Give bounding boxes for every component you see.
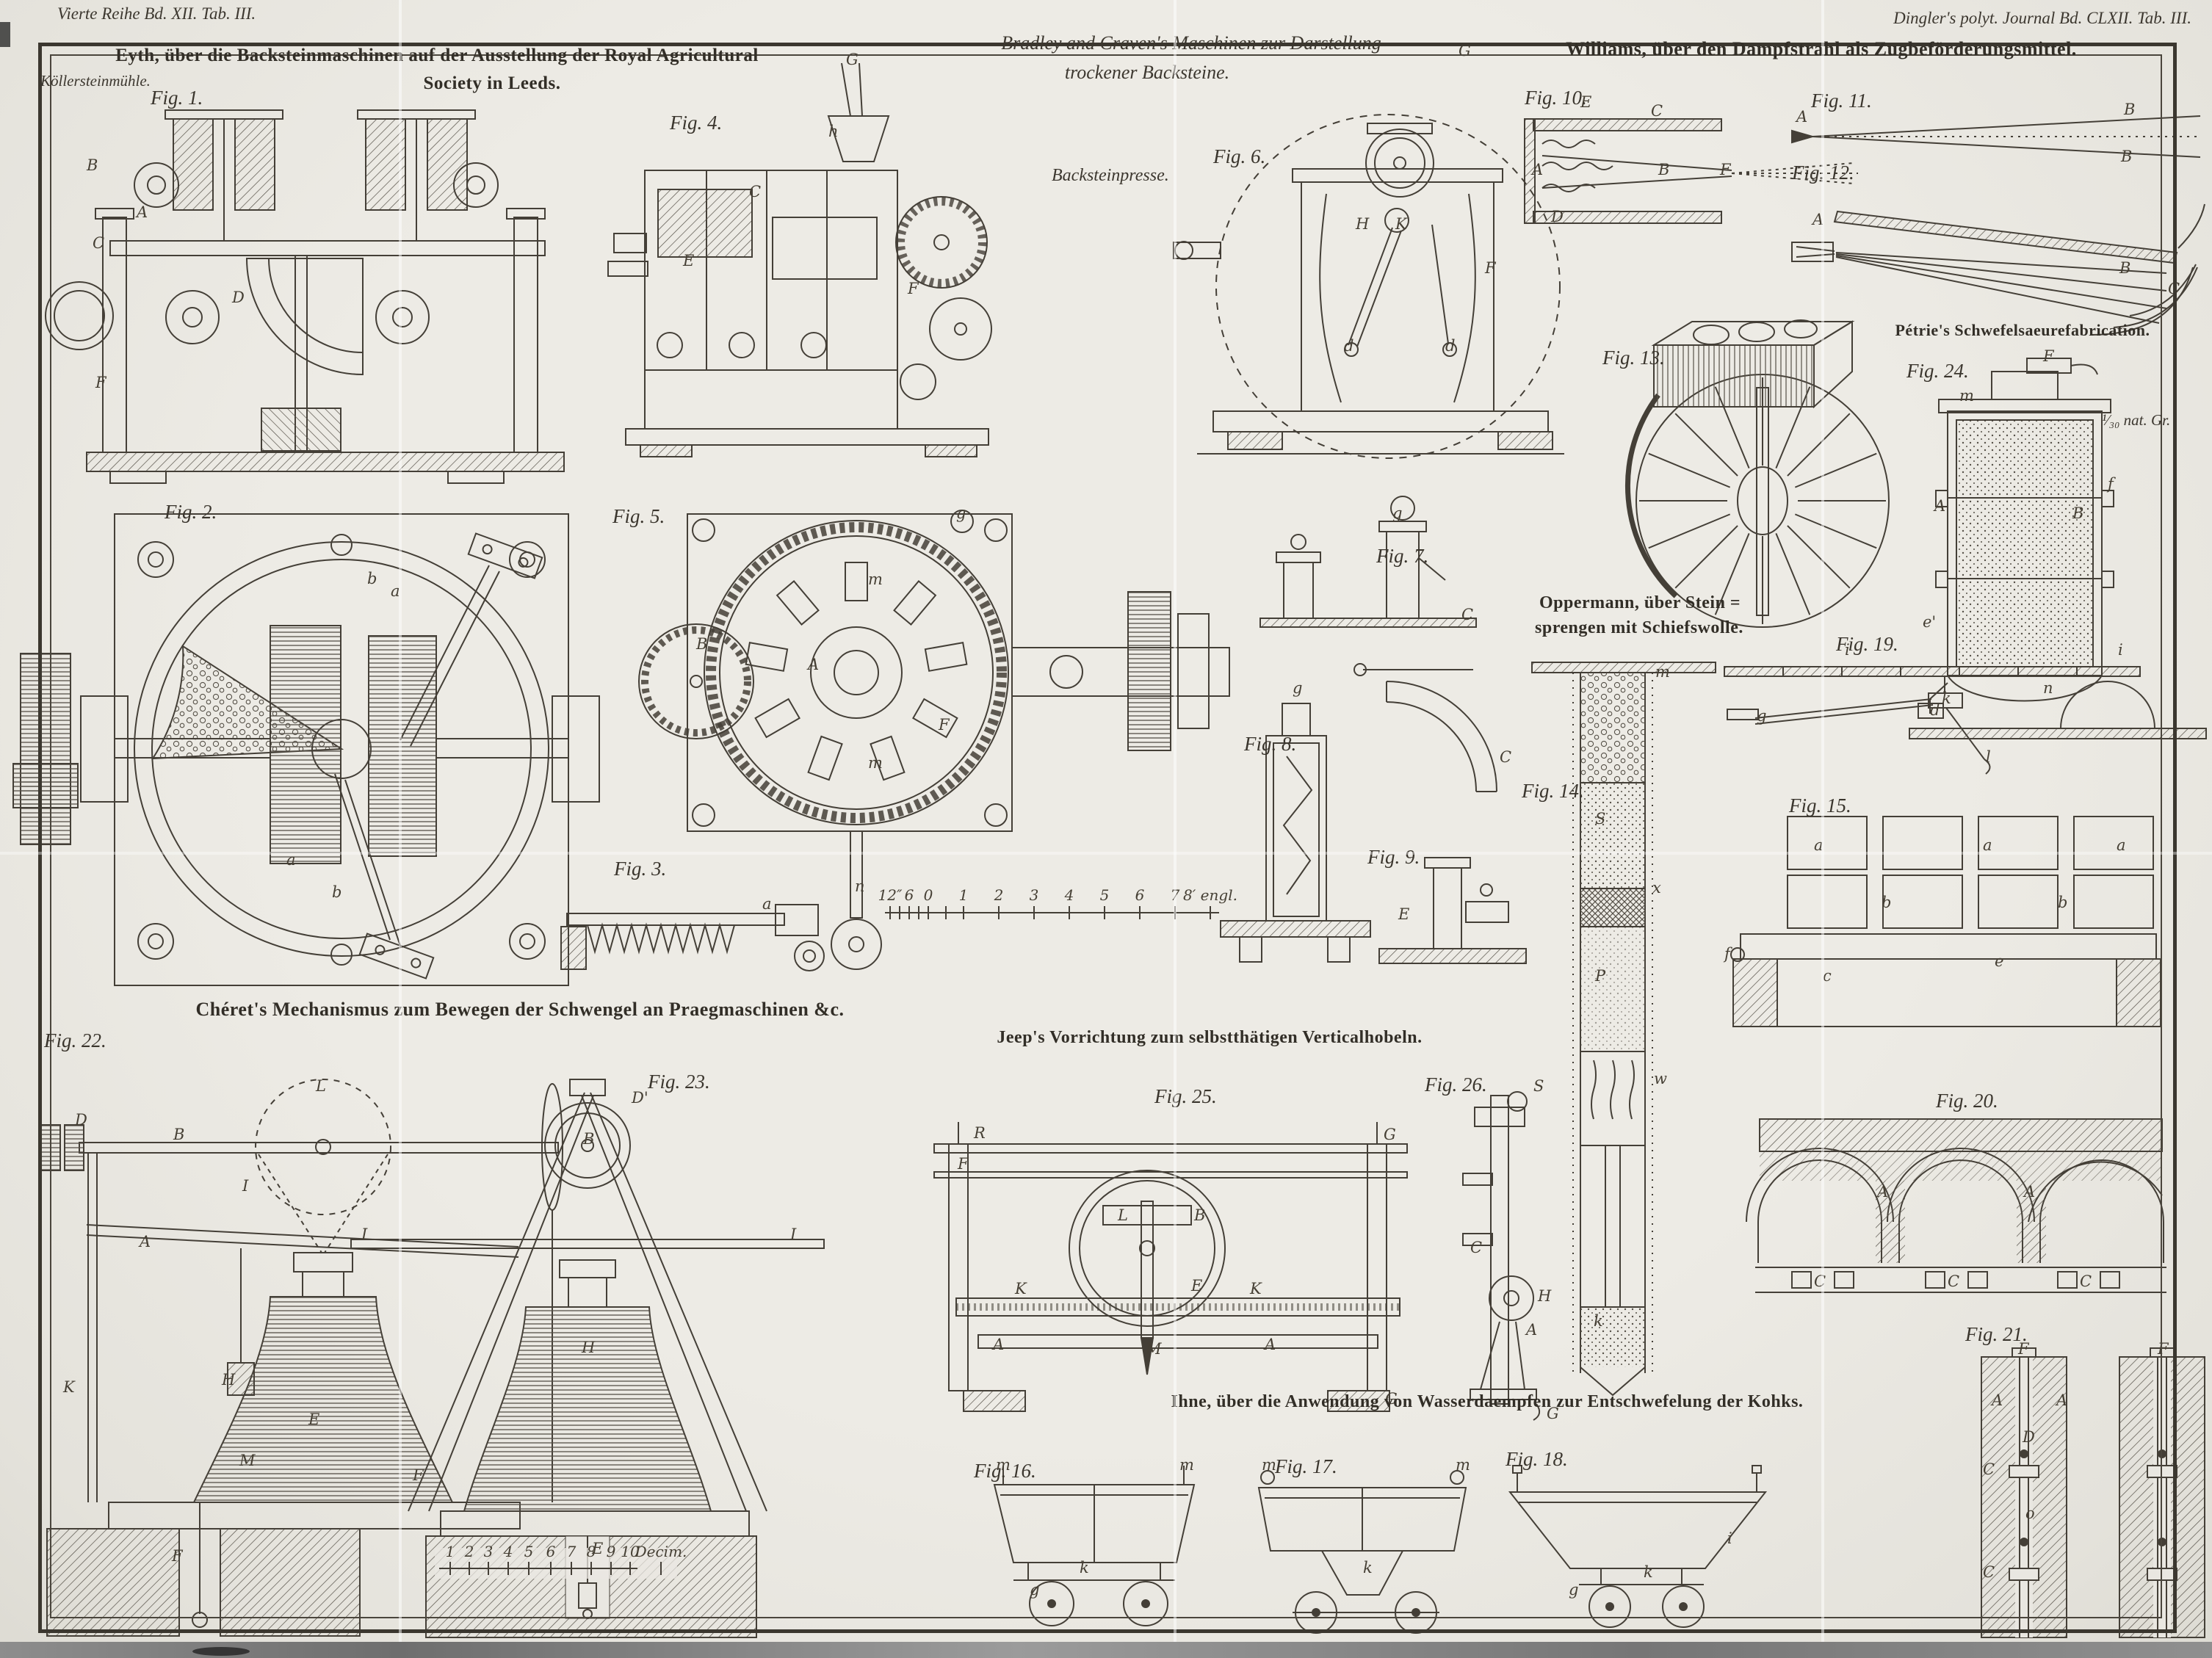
title-ihne: Ihne, über die Anwendung von Wasserdaemp… bbox=[1157, 1392, 1817, 1412]
caption-nat-gr: ¹⁄₃₀ nat. Gr. bbox=[2102, 411, 2170, 430]
scan-artifact bbox=[0, 22, 10, 47]
figure-label-fig4: Fig. 4. bbox=[670, 112, 722, 134]
title-jeep: Jeep's Vorrichtung zum selbstthätigen Ve… bbox=[966, 1028, 1453, 1048]
figure-label-fig20: Fig. 20. bbox=[1936, 1090, 1998, 1112]
figure-label-fig22: Fig. 22. bbox=[44, 1029, 106, 1052]
title-eyth-line1: Eyth, über die Backsteinmaschinen auf de… bbox=[77, 46, 797, 66]
fold-crease bbox=[1821, 0, 1824, 1658]
scan-shadow bbox=[0, 1642, 2212, 1658]
title-bradley-line2: trockener Backsteine. bbox=[1008, 62, 1287, 84]
figure-label-fig26: Fig. 26. bbox=[1425, 1074, 1487, 1096]
figure-label-fig15: Fig. 15. bbox=[1789, 794, 1851, 817]
figure-label-fig19: Fig. 19. bbox=[1836, 633, 1898, 656]
scan-artifact bbox=[192, 1647, 250, 1656]
title-cheret: Chéret's Mechanismus zum Bewegen der Sch… bbox=[185, 999, 855, 1021]
plate-border-inner bbox=[50, 54, 2162, 1618]
figure-label-fig17: Fig. 17. bbox=[1275, 1455, 1337, 1478]
figure-label-fig9: Fig. 9. bbox=[1367, 846, 1420, 869]
title-petrie: Pétrie's Schwefelsaeurefabrication. bbox=[1871, 321, 2174, 340]
figure-label-fig8: Fig. 8. bbox=[1244, 733, 1296, 756]
title-oppermann-line1: Oppermann, über Stein = bbox=[1539, 593, 1741, 613]
figure-label-fig14: Fig. 14. bbox=[1522, 780, 1584, 803]
figure-label-fig7: Fig. 7. bbox=[1376, 545, 1428, 568]
fold-crease bbox=[1174, 0, 1177, 1658]
figure-label-fig13: Fig. 13. bbox=[1602, 347, 1665, 369]
figure-label-fig5: Fig. 5. bbox=[612, 505, 665, 528]
figure-label-fig1: Fig. 1. bbox=[151, 87, 203, 109]
journal-annotation-right: Dingler's polyt. Journal Bd. CLXII. Tab.… bbox=[1893, 9, 2191, 28]
figure-label-fig2: Fig. 2. bbox=[165, 501, 217, 524]
series-annotation-left: Vierte Reihe Bd. XII. Tab. III. bbox=[57, 4, 256, 23]
fold-crease bbox=[0, 852, 2212, 855]
title-oppermann-line2: sprengen mit Schiefswolle. bbox=[1535, 618, 1743, 638]
title-bradley-line1: Bradley and Craven's Maschinen zur Darst… bbox=[971, 32, 1412, 54]
figure-label-fig10: Fig. 10. bbox=[1525, 87, 1587, 109]
figure-label-fig16: Fig. 16. bbox=[974, 1460, 1036, 1483]
figure-label-fig23: Fig. 23. bbox=[648, 1071, 710, 1093]
caption-backsteinpresse: Backsteinpresse. bbox=[1052, 166, 1169, 186]
caption-koellersteinmuehle: Köllersteinmühle. bbox=[40, 72, 151, 90]
title-eyth-line2: Society in Leeds. bbox=[353, 73, 632, 94]
figure-label-fig24: Fig. 24. bbox=[1906, 360, 1969, 383]
figure-label-fig3: Fig. 3. bbox=[614, 858, 666, 880]
plate: Vierte Reihe Bd. XII. Tab. III. Dingler'… bbox=[0, 0, 2212, 1658]
fold-crease bbox=[399, 0, 402, 1658]
figure-label-fig21: Fig. 21. bbox=[1965, 1323, 2028, 1346]
figure-label-fig11: Fig. 11. bbox=[1811, 90, 1872, 112]
figure-label-fig6: Fig. 6. bbox=[1213, 145, 1265, 168]
figure-label-fig25: Fig. 25. bbox=[1154, 1085, 1217, 1108]
figure-label-fig18: Fig. 18. bbox=[1506, 1448, 1568, 1471]
